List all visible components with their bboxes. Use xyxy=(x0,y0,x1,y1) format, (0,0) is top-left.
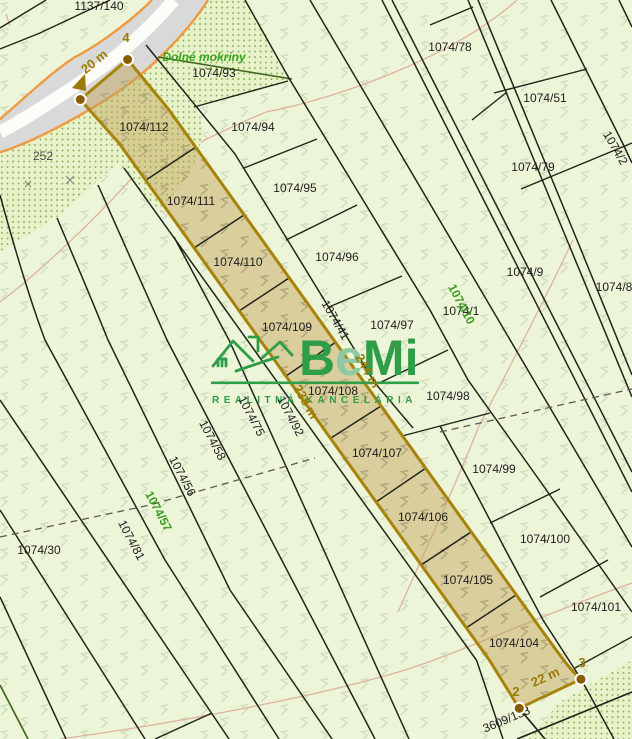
svg-text:1074/8: 1074/8 xyxy=(596,280,632,294)
svg-text:1074/99: 1074/99 xyxy=(472,462,516,476)
svg-text:1074/112: 1074/112 xyxy=(119,120,168,134)
svg-text:1074/108: 1074/108 xyxy=(308,384,358,398)
svg-text:1074/101: 1074/101 xyxy=(571,600,621,614)
svg-text:1074/51: 1074/51 xyxy=(523,91,567,105)
svg-text:1074/96: 1074/96 xyxy=(315,250,359,264)
svg-text:1074/100: 1074/100 xyxy=(520,532,570,546)
svg-text:1074/94: 1074/94 xyxy=(231,120,275,134)
svg-text:3: 3 xyxy=(578,655,585,670)
svg-text:1074/30: 1074/30 xyxy=(17,543,61,557)
svg-text:1074/79: 1074/79 xyxy=(511,160,555,174)
svg-text:1074/95: 1074/95 xyxy=(273,181,317,195)
svg-text:Dolné mokriny: Dolné mokriny xyxy=(162,50,247,64)
svg-text:1074/9: 1074/9 xyxy=(507,265,544,279)
svg-text:1074/109: 1074/109 xyxy=(262,320,312,334)
svg-text:1074/98: 1074/98 xyxy=(426,389,470,403)
svg-text:1074/97: 1074/97 xyxy=(370,318,414,332)
svg-text:1074/107: 1074/107 xyxy=(352,446,402,460)
svg-text:252: 252 xyxy=(33,149,53,163)
svg-text:2: 2 xyxy=(512,684,519,699)
svg-text:1074/93: 1074/93 xyxy=(192,66,236,80)
svg-text:1074/111: 1074/111 xyxy=(167,194,216,208)
svg-text:4: 4 xyxy=(122,30,130,45)
svg-text:1074/104: 1074/104 xyxy=(489,636,539,650)
svg-text:1074/110: 1074/110 xyxy=(213,255,262,269)
svg-text:1074/106: 1074/106 xyxy=(398,510,448,524)
svg-text:1137/140: 1137/140 xyxy=(74,0,123,13)
svg-text:1074/78: 1074/78 xyxy=(428,40,472,54)
svg-text:1074/105: 1074/105 xyxy=(443,573,493,587)
